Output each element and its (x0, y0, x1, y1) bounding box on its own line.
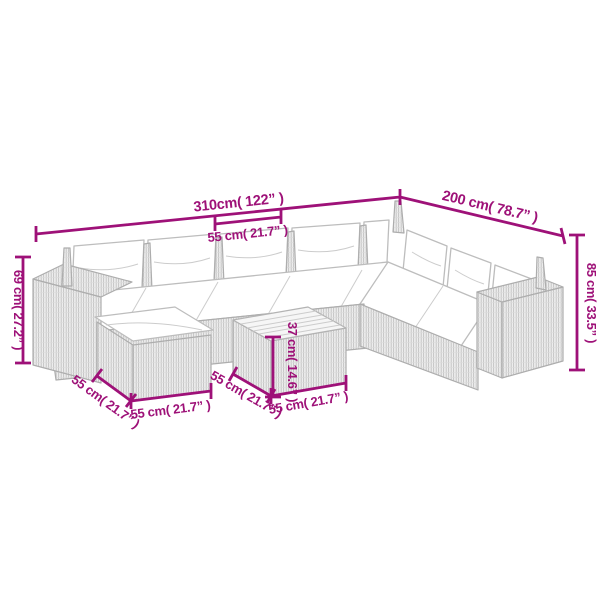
sofa-set-diagram-svg: 310cm( 122” ) 200 cm( 78.7” ) 55 cm( 21.… (0, 0, 600, 600)
dim-back-height-label: 85 cm( 33.5” ) (584, 263, 599, 343)
product-dimension-diagram: 310cm( 122” ) 200 cm( 78.7” ) 55 cm( 21.… (0, 0, 600, 600)
dim-total-depth: 200 cm( 78.7” ) (400, 188, 565, 244)
dim-sofa-height-label: 69 cm( 27.2” ) (11, 270, 26, 350)
dim-back-height: 85 cm( 33.5” ) (569, 235, 599, 370)
dim-sofa-height: 69 cm( 27.2” ) (11, 257, 31, 363)
dim-total-depth-label: 200 cm( 78.7” ) (440, 188, 539, 227)
dim-total-width-label: 310cm( 122” ) (193, 190, 285, 215)
